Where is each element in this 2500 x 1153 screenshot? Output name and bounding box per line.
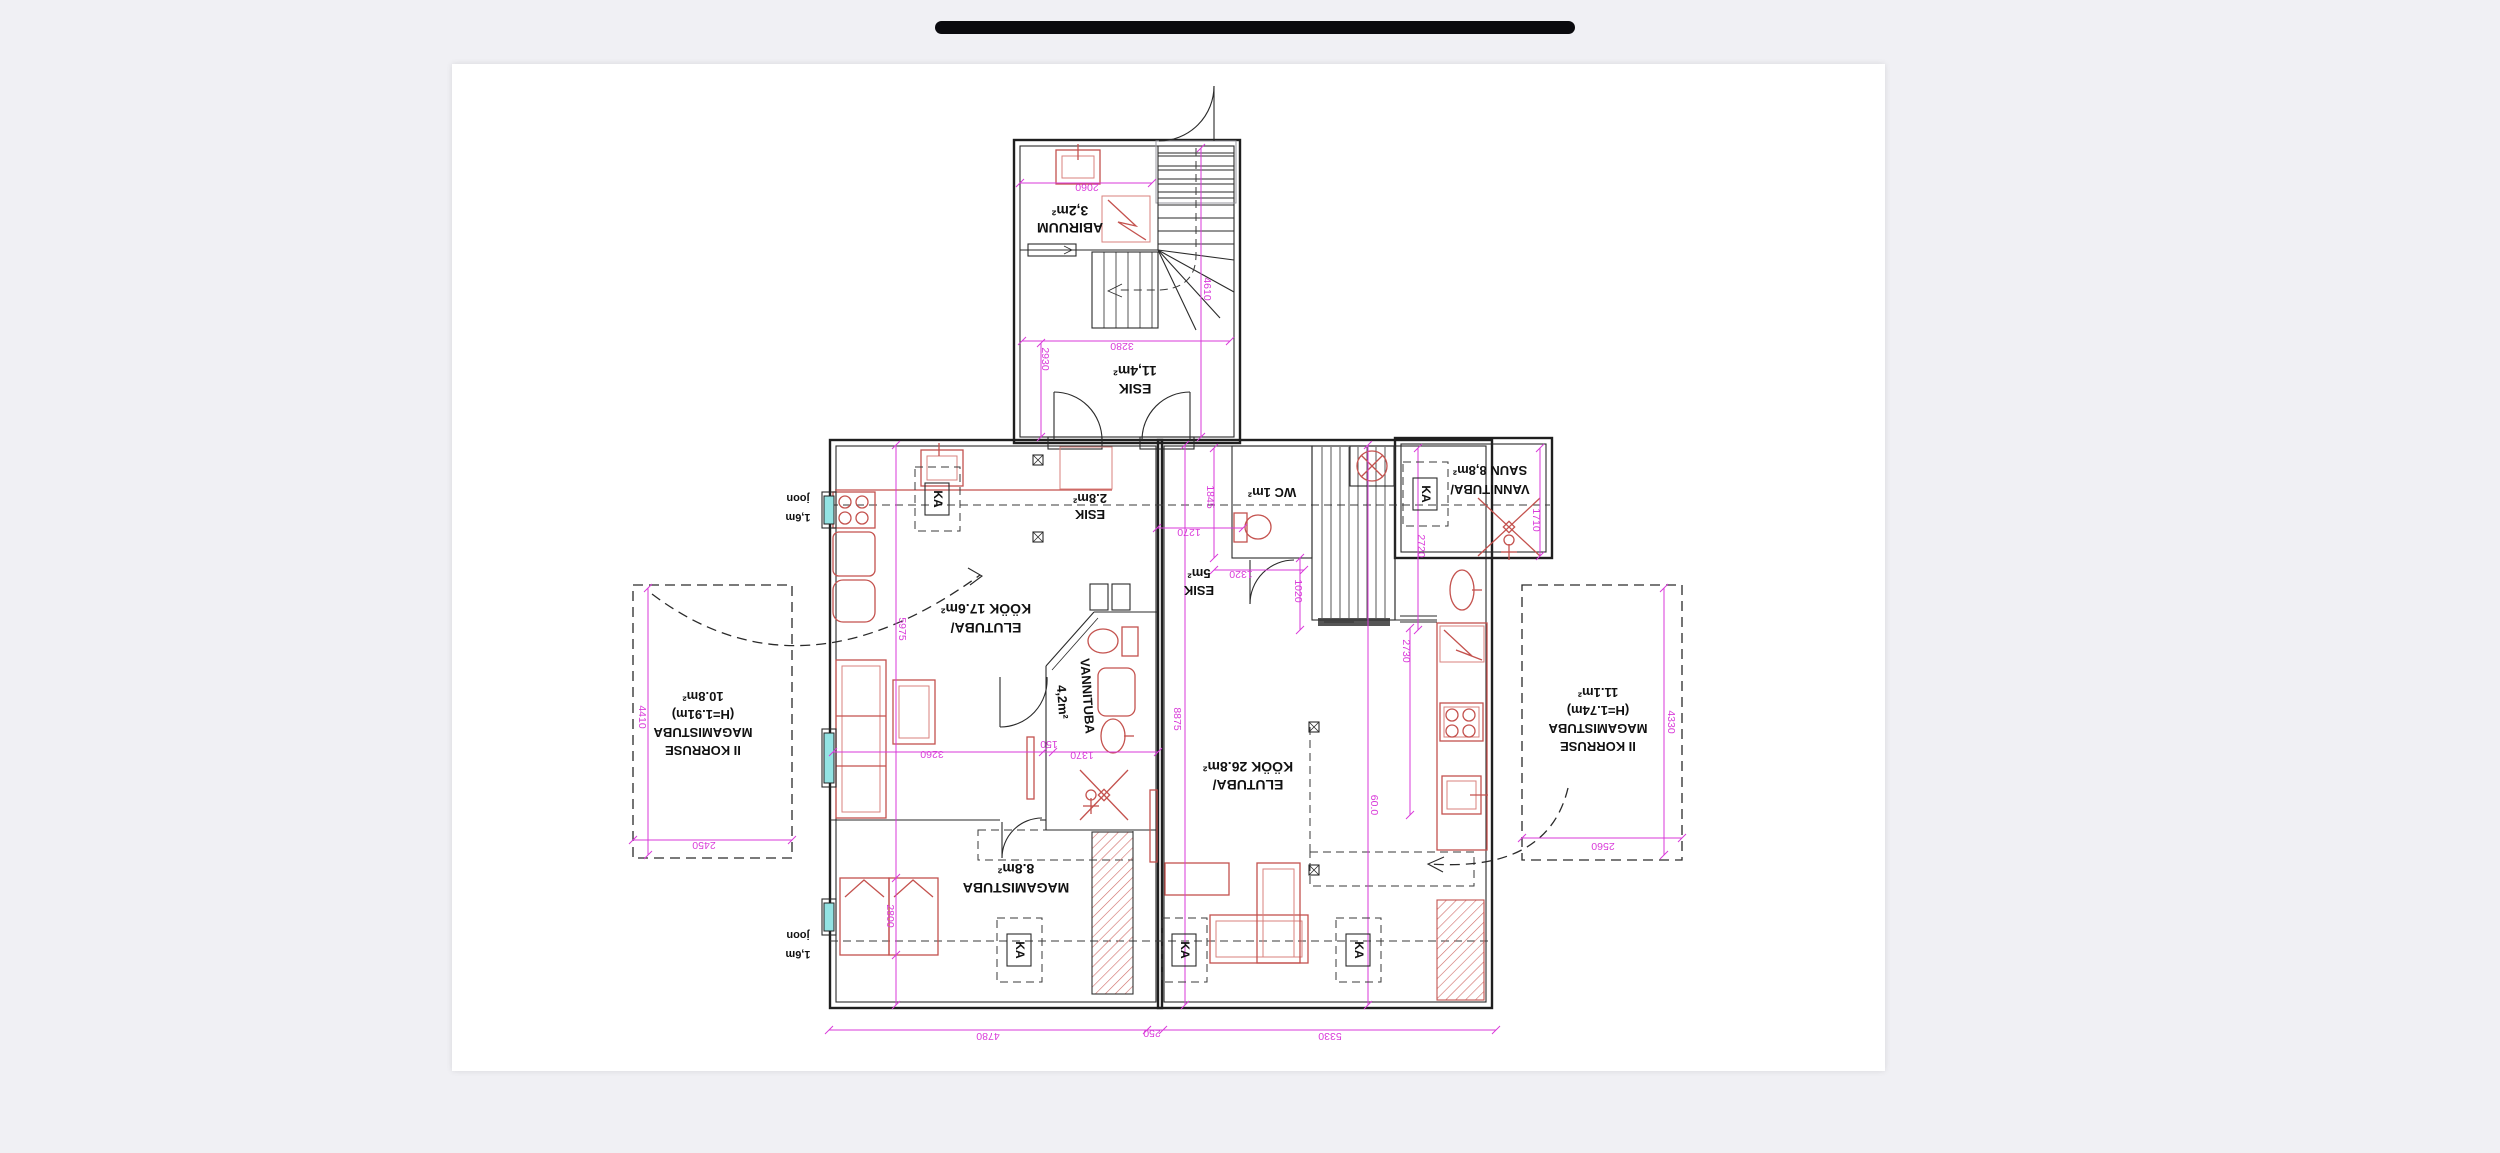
esik-11-label: 11,4m²: [1113, 363, 1157, 379]
dimension-text: 4610: [1201, 277, 1213, 301]
joon-bottom-label: 1,6m: [785, 948, 810, 960]
abiruum-label: 3,2m²: [1051, 203, 1088, 219]
vannituba-saun-label: SAUN 8,8m²: [1452, 463, 1527, 478]
dimension-text: 1320: [1229, 568, 1253, 580]
esik-11-label: ESIK: [1119, 381, 1152, 397]
elutuba-kook-268-label: ELUTUBA/: [1213, 777, 1284, 793]
joon-bottom-label: joon: [786, 929, 810, 941]
dimension-text: 60.0: [1368, 795, 1380, 816]
abiruum-label: ABIRUUM: [1037, 220, 1103, 236]
korruse-right-label: 11.1m²: [1577, 685, 1618, 700]
elutuba-kook-17-label: ELUTUBA/: [951, 620, 1022, 636]
elutuba-kook-268-label: KÖÖK 26.8m²: [1203, 759, 1294, 775]
toilet-icon: [1088, 629, 1118, 653]
esik-5-label: ESIK: [1183, 583, 1214, 598]
esik-5-label: 5m²: [1187, 566, 1211, 581]
dimension-text: 8875: [1171, 707, 1183, 731]
sofa-icon: [1210, 863, 1308, 963]
window-icon: [824, 496, 834, 524]
roof-window-label: KA: [931, 490, 945, 508]
dimension-text: 2450: [692, 839, 716, 851]
staircase-right: [1312, 446, 1395, 626]
korruse-left-label: II KORRUSE: [665, 743, 741, 758]
korruse-left-label: MAGAMISTUBA: [653, 725, 753, 740]
vannituba-saun-label: VANNITUBA/: [1450, 482, 1530, 497]
left-unit: [822, 443, 1158, 994]
dimension-text: 2720: [1415, 534, 1427, 558]
korruse-right-label: (H=1.74m): [1567, 703, 1630, 718]
right-unit: [1150, 446, 1540, 1000]
storage-zone: [1310, 852, 1474, 886]
dimension-text: 2930: [1039, 347, 1051, 371]
shower-icon: [1080, 770, 1128, 820]
electrical-panel-icon: [1444, 630, 1482, 660]
dimension-text: 150: [1040, 738, 1058, 750]
dimension-text: 1710: [1530, 508, 1542, 532]
screenshot-root: { "window": { "background": "#f0f0f4", "…: [0, 0, 2500, 1153]
dimension-text: 2730: [1400, 639, 1412, 663]
joon-top-label: joon: [786, 492, 810, 504]
stove-icon: [1440, 703, 1483, 741]
dimension-text: 1020: [1292, 579, 1304, 603]
magamistuba-88-label: MAGAMISTUBA: [963, 880, 1070, 896]
korruse-left-label: 10.8m²: [682, 689, 724, 704]
door-leaf-red: [1027, 737, 1034, 799]
korruse-right-label: II KORRUSE: [1560, 739, 1636, 754]
roof-window-label: KA: [1419, 485, 1433, 503]
dimension-text: 1270: [1177, 526, 1201, 538]
table-icon: [1165, 863, 1229, 895]
basin-icon: [1101, 719, 1125, 753]
dimension-text: 2800: [884, 904, 896, 928]
esik-28-label: 2.8m²: [1072, 491, 1107, 506]
dimension-text: 5975: [896, 617, 908, 641]
window-icon: [824, 733, 834, 783]
esik-28-label: ESIK: [1074, 507, 1105, 522]
joon-top-label: 1,6m: [785, 511, 810, 523]
floor-plan-canvas: 3,2m²ABIRUUM11,4m²ESIK2.8m²ESIKKÖÖK 17.6…: [0, 0, 2500, 1153]
dimension-text: 4780: [976, 1030, 1000, 1042]
elutuba-kook-17-label: KÖÖK 17.6m²: [941, 601, 1032, 617]
walkline-arrow: [1108, 284, 1122, 297]
dimension-text: 3260: [920, 748, 944, 760]
dimension-text: 2060: [1075, 181, 1099, 193]
dimension-text: 3280: [1110, 340, 1134, 352]
stove-icon: [833, 492, 875, 528]
basin-icon: [1450, 570, 1474, 610]
entry-door-swing: [1159, 86, 1214, 141]
bathroom-42: [1000, 584, 1158, 830]
korruse-left-label: (H=1.91m): [672, 707, 735, 722]
kitchen-right: [1437, 623, 1488, 850]
vannituba-42-label: VANNITUBA: [1077, 658, 1097, 735]
dimension-text: 5330: [1318, 1030, 1342, 1042]
vannituba-42-area: 4,2m²: [1054, 684, 1071, 720]
dimension-text: 1845: [1204, 485, 1216, 509]
tub-icon: [1098, 668, 1135, 716]
korruse-right-label: MAGAMISTUBA: [1548, 721, 1648, 736]
dimension-text: 4410: [636, 705, 648, 729]
hearth-hatch: [1437, 900, 1484, 1000]
entry-porch: [1156, 86, 1236, 203]
sofa-icon: [836, 660, 886, 818]
dimension-text: 4330: [1665, 710, 1677, 734]
electrical-panel-icon: [1102, 196, 1150, 242]
dimension-text: 1370: [1070, 749, 1094, 761]
wc-room: [1232, 446, 1312, 558]
roof-window-label: KA: [1352, 941, 1366, 959]
dimension-text: 2560: [1591, 840, 1615, 852]
roof-window-label: KA: [1013, 941, 1027, 959]
magamistuba-88-label: 8.8m²: [997, 861, 1034, 877]
window-icon: [824, 903, 834, 931]
chimney-hatch: [1092, 832, 1133, 994]
staircase-top: [1092, 148, 1234, 330]
vent-fan-icon: [1350, 446, 1394, 486]
roof-window-label: KA: [1178, 941, 1192, 959]
wc-label: WC 1m²: [1247, 485, 1296, 500]
dimension-text: 250: [1143, 1027, 1161, 1039]
